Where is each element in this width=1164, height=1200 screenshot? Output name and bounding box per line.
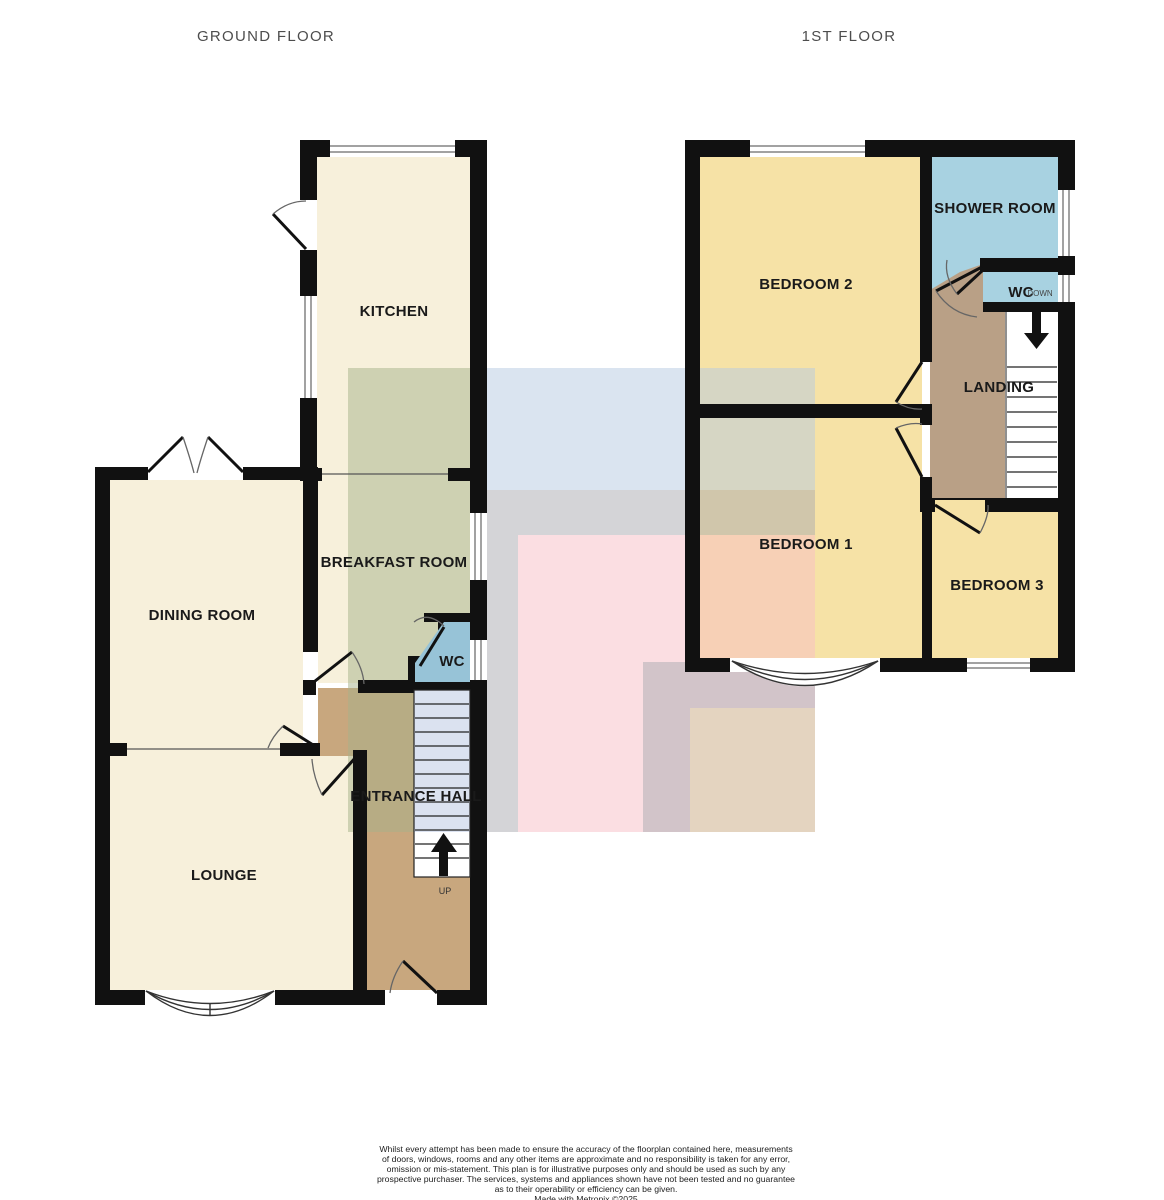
window-breakfast-right-lower (470, 640, 487, 680)
wall-divider-stub-right (448, 468, 470, 481)
room-label-landing: LANDING (964, 379, 1034, 396)
door-french-dining (148, 437, 243, 473)
first-floor-header: 1ST FLOOR (802, 28, 897, 45)
disclaimer-line: as to their operability or efficiency ca… (495, 1184, 678, 1194)
window-bedroom2-top (750, 140, 865, 157)
ground-floor-stairs (414, 690, 470, 877)
bay-window-lounge (146, 991, 274, 1017)
disclaimer-line: omission or mis-statement. This plan is … (387, 1164, 786, 1174)
wall-bed2-bed1-divider (685, 404, 932, 418)
overlay-gray-left-rect (486, 535, 518, 832)
overlay-blue-rect (486, 368, 815, 490)
stairs-up-label: UP (439, 886, 452, 896)
room-label-dining: DINING ROOM (149, 607, 256, 624)
window-kitchen-top (330, 140, 455, 157)
disclaimer-credit: Made with Metropix ©2025 (534, 1194, 638, 1200)
window-bedroom3-bottom (967, 658, 1030, 672)
window-shower-right (1058, 190, 1075, 256)
wall-ground-left (95, 467, 110, 1005)
room-label-wc-ground: WC (439, 653, 465, 670)
disclaimer-line: of doors, windows, rooms and any other i… (382, 1154, 790, 1164)
window-kitchen-left (300, 296, 317, 398)
wall-lounge-stub-left (95, 743, 127, 756)
room-label-breakfast: BREAKFAST ROOM (321, 554, 468, 571)
opening-kitchen-door (300, 200, 317, 250)
opening-front-door (385, 990, 437, 1005)
stairs-down-label: DOWN (1027, 289, 1053, 298)
room-label-shower: SHOWER ROOM (934, 200, 1056, 217)
wall-dining-right (303, 467, 318, 652)
disclaimer-line: Whilst every attempt has been made to en… (379, 1144, 793, 1154)
wall-lounge-hall (353, 750, 367, 990)
overlay-gray-top-rect (486, 490, 815, 535)
floorplan-page: GROUND FLOOR 1ST FLOOR (0, 0, 1164, 1200)
room-label-kitchen: KITCHEN (360, 303, 429, 320)
room-label-bedroom3: BEDROOM 3 (950, 577, 1044, 594)
window-breakfast-right-upper (470, 513, 487, 580)
overlay-cream-rect (690, 708, 815, 832)
floorplan-canvas: GROUND FLOOR 1ST FLOOR (0, 0, 1164, 1200)
disclaimer-text: Whilst every attempt has been made to en… (377, 1144, 795, 1200)
window-wc-right (1058, 275, 1075, 302)
wall-first-top (685, 140, 1075, 157)
ground-floor-header: GROUND FLOOR (197, 28, 335, 45)
room-label-entrance-hall: ENTRANCE HALL (350, 788, 481, 805)
wall-bed2-shower (920, 157, 932, 362)
disclaimer-line: prospective purchaser. The services, sys… (377, 1174, 795, 1184)
wall-wc-first-bottom (983, 302, 1075, 312)
stairs-up-tinted (414, 690, 470, 832)
room-label-lounge: LOUNGE (191, 867, 257, 884)
wall-shower-bottom (980, 258, 1058, 272)
wall-dining-top-right (243, 467, 303, 480)
wall-bed1-bed3-divider (922, 512, 932, 658)
room-label-bedroom2: BEDROOM 2 (759, 276, 853, 293)
room-label-bedroom1: BEDROOM 1 (759, 536, 853, 553)
